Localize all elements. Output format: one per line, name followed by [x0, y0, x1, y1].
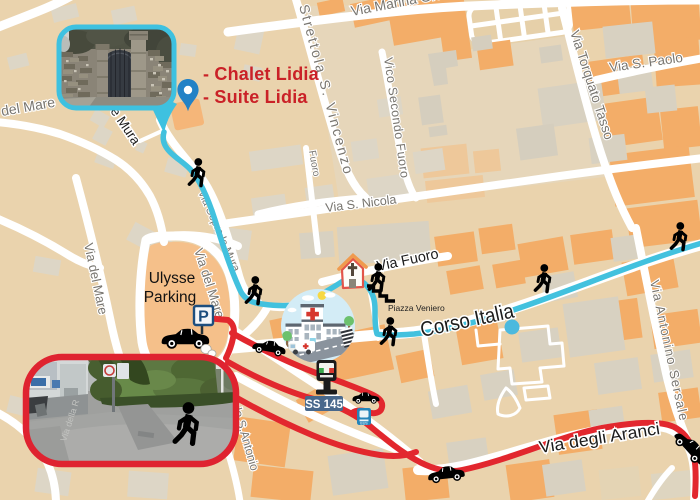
svg-text:SS 145: SS 145 [305, 399, 343, 411]
svg-text:Ulysse: Ulysse [149, 270, 196, 287]
svg-text:P: P [198, 309, 209, 326]
svg-text:Piazza Veniero: Piazza Veniero [388, 303, 445, 313]
svg-text:- Suite Lidia: - Suite Lidia [203, 87, 308, 107]
svg-text:Parking: Parking [144, 289, 197, 306]
svg-text:- Chalet Lidia: - Chalet Lidia [203, 64, 320, 84]
svg-text:BUS: BUS [360, 422, 368, 426]
